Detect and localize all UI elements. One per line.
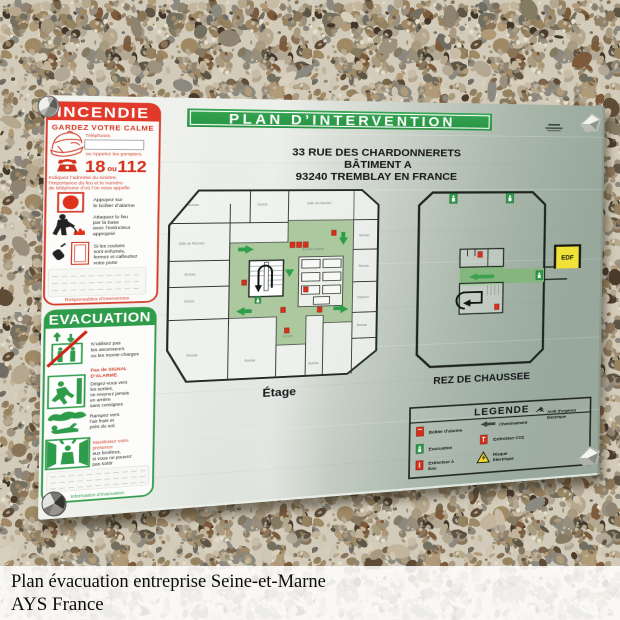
svg-text:votre porte: votre porte [93, 260, 117, 266]
svg-text:Accueil Cuisine: Accueil Cuisine [302, 247, 324, 251]
svg-text:33 RUE DES CHARDONNERETS: 33 RUE DES CHARDONNERETS [292, 146, 461, 159]
svg-text:Bureau: Bureau [245, 359, 256, 363]
svg-text:ou Appelez les pompiers: ou Appelez les pompiers [86, 152, 142, 158]
svg-text:PLAN D’INTERVENTION: PLAN D’INTERVENTION [229, 112, 456, 130]
svg-text:Bureau: Bureau [308, 361, 319, 365]
svg-text:Dortoir: Dortoir [258, 203, 269, 207]
svg-text:Appuyez sur: Appuyez sur [93, 197, 123, 203]
svg-text:Téléphones :: Téléphones : [85, 133, 112, 138]
svg-text:Bureau: Bureau [357, 323, 367, 327]
svg-text:Bureau: Bureau [186, 354, 197, 358]
svg-text:de téléphone d’où l’on vous ap: de téléphone d’où l’on vous appelle [49, 186, 130, 192]
svg-text:Étage: Étage [262, 385, 296, 400]
svg-text:BÂTIMENT A: BÂTIMENT A [344, 158, 412, 171]
svg-text:18: 18 [85, 157, 106, 175]
svg-text:Salle de Réunion: Salle de Réunion [179, 242, 205, 246]
svg-text:Bureau: Bureau [185, 273, 196, 277]
svg-text:ou: ou [107, 165, 117, 173]
svg-text:Bureau: Bureau [359, 234, 369, 238]
svg-text:Si les couloirs: Si les couloirs [94, 244, 126, 250]
svg-text:approprié: approprié [93, 231, 115, 237]
svg-text:Bureau: Bureau [188, 203, 199, 207]
svg-text:Bureau: Bureau [359, 264, 369, 268]
svg-text:EDF: EDF [561, 254, 574, 262]
svg-text:93240 TREMBLAY EN FRANCE: 93240 TREMBLAY EN FRANCE [296, 170, 458, 182]
svg-text:le boîtier d’alarme: le boîtier d’alarme [93, 203, 135, 209]
svg-text:Dortoir: Dortoir [184, 300, 195, 304]
svg-text:sont enfumés,: sont enfumés, [94, 249, 126, 255]
svg-text:fermez et calfeutrez: fermez et calfeutrez [93, 254, 138, 260]
svg-text:Salle de Réunion: Salle de Réunion [307, 202, 332, 206]
svg-text:GARDEZ VOTRE CALME: GARDEZ VOTRE CALME [52, 123, 154, 132]
svg-text:Réserve: Réserve [357, 295, 369, 299]
svg-text:112: 112 [117, 158, 147, 176]
svg-text:Accueil: Accueil [282, 334, 293, 338]
svg-text:INCENDIE: INCENDIE [57, 104, 150, 122]
svg-text:Eau: Eau [428, 466, 436, 472]
